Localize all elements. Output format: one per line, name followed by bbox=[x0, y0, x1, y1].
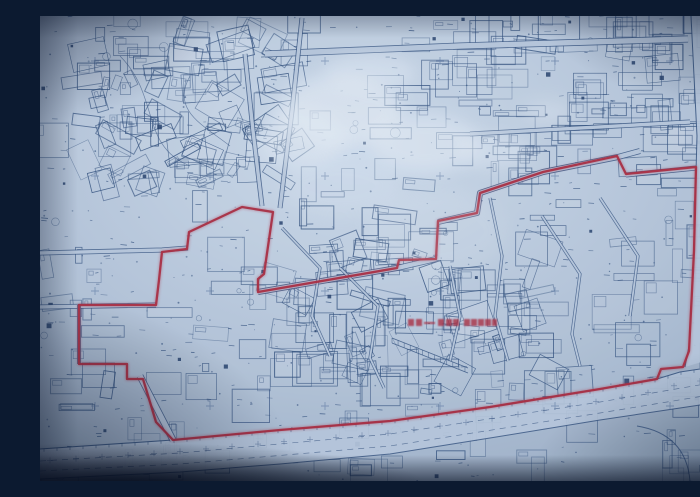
annotation-glyph bbox=[492, 319, 497, 326]
annotation-glyph bbox=[438, 319, 444, 326]
annotation-glyph bbox=[416, 319, 422, 326]
annotation-glyph bbox=[408, 319, 414, 326]
glare-blob bbox=[280, 156, 400, 216]
cadastral-map-photo bbox=[40, 16, 700, 481]
annotation-glyph bbox=[446, 319, 452, 326]
annotation-glyph bbox=[453, 319, 459, 326]
glare-blob bbox=[522, 99, 574, 125]
annotation-glyph bbox=[471, 319, 477, 326]
annotation-glyph bbox=[478, 319, 484, 326]
map-canvas bbox=[40, 16, 700, 481]
annotation-glyph bbox=[464, 319, 470, 326]
glare-blob bbox=[459, 133, 531, 169]
annotation-dash bbox=[424, 322, 435, 324]
annotation-glyph bbox=[485, 319, 491, 326]
glare-blob bbox=[324, 55, 416, 91]
